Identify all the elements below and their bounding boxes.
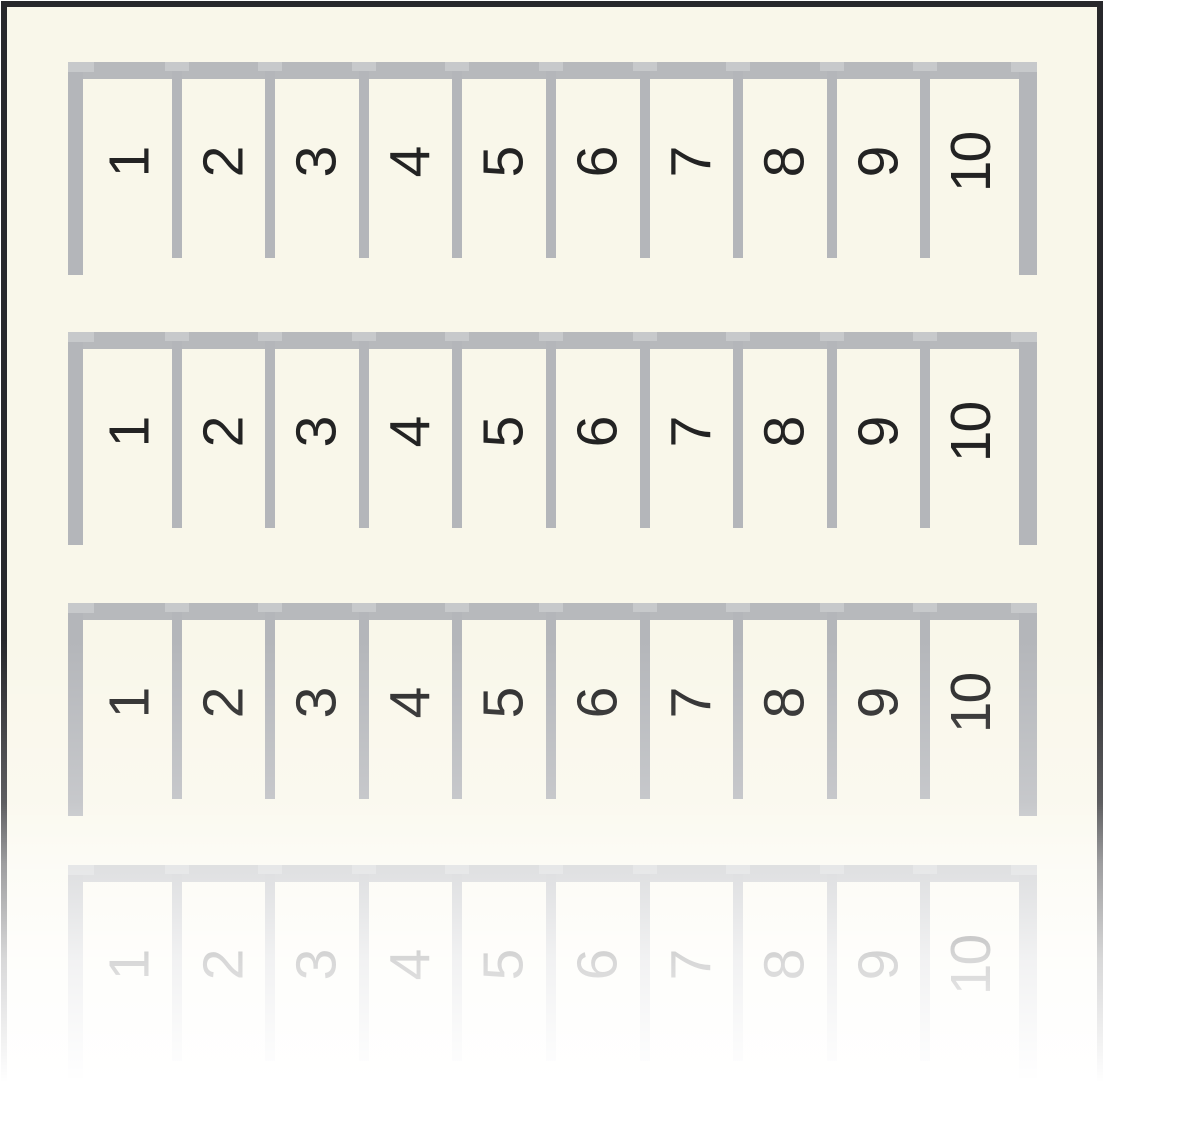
cell-number: 1 — [101, 688, 158, 718]
cell-number: 7 — [663, 950, 720, 980]
cell-number: 9 — [850, 417, 907, 447]
marker-cell: 6 — [551, 903, 645, 1027]
strip-left-rail — [68, 871, 83, 1078]
cell-number: 7 — [663, 417, 720, 447]
marker-cell: 7 — [645, 370, 739, 494]
marker-cell: 6 — [551, 370, 645, 494]
marker-cell: 1 — [83, 641, 177, 765]
cell-divider-cap — [913, 603, 937, 612]
strip-left-rail-cap — [68, 62, 94, 72]
cell-divider-cap — [820, 865, 844, 874]
cell-number: 5 — [476, 147, 533, 177]
cell-number: 5 — [476, 688, 533, 718]
cell-divider-cap — [352, 62, 376, 71]
marker-cell: 2 — [177, 100, 271, 224]
marker-cell: 4 — [364, 903, 458, 1027]
marker-cell: 3 — [270, 903, 364, 1027]
marker-cell: 10 — [925, 641, 1019, 765]
marker-strip-4-faded: 12345678910 — [68, 865, 1037, 1078]
cell-divider-cap — [913, 332, 937, 341]
marker-cell: 1 — [83, 100, 177, 224]
strip-right-rail-cap — [1011, 62, 1037, 72]
strip-left-rail — [68, 68, 83, 275]
marker-cell: 9 — [832, 641, 926, 765]
marker-cell: 8 — [738, 100, 832, 224]
marker-strip-2: 12345678910 — [68, 332, 1037, 545]
cell-number: 10 — [944, 132, 1001, 191]
cell-number: 2 — [195, 147, 252, 177]
cell-number: 3 — [288, 147, 345, 177]
marker-strip-3: 12345678910 — [68, 603, 1037, 816]
strip-left-rail-cap — [68, 332, 94, 342]
marker-cell: 5 — [457, 370, 551, 494]
cell-number: 4 — [382, 950, 439, 980]
cell-number: 1 — [101, 950, 158, 980]
strip-right-rail-cap — [1011, 332, 1037, 342]
cell-number: 4 — [382, 417, 439, 447]
cell-number: 8 — [756, 950, 813, 980]
cell-divider-cap — [726, 332, 750, 341]
marker-cell: 3 — [270, 641, 364, 765]
marker-cell: 6 — [551, 100, 645, 224]
cell-divider-cap — [165, 62, 189, 71]
marker-cell: 2 — [177, 370, 271, 494]
marker-cell: 1 — [83, 370, 177, 494]
cell-divider-cap — [539, 603, 563, 612]
cell-number: 5 — [476, 417, 533, 447]
cell-divider-cap — [820, 603, 844, 612]
marker-cell: 4 — [364, 641, 458, 765]
strip-left-rail — [68, 338, 83, 545]
cell-number: 2 — [195, 950, 252, 980]
marker-cell: 7 — [645, 641, 739, 765]
cell-divider-cap — [633, 332, 657, 341]
cell-number: 7 — [663, 147, 720, 177]
marker-cell: 5 — [457, 100, 551, 224]
marker-cell: 4 — [364, 100, 458, 224]
cell-divider-cap — [633, 62, 657, 71]
cell-divider-cap — [445, 603, 469, 612]
marker-cell: 5 — [457, 903, 551, 1027]
cell-number: 6 — [569, 147, 626, 177]
cell-divider-cap — [820, 62, 844, 71]
cell-divider-cap — [352, 332, 376, 341]
marker-cell: 10 — [925, 903, 1019, 1027]
cell-number: 4 — [382, 147, 439, 177]
cell-number: 3 — [288, 688, 345, 718]
marker-cell: 2 — [177, 903, 271, 1027]
strip-right-rail — [1019, 609, 1037, 816]
marker-cell: 5 — [457, 641, 551, 765]
cell-number: 10 — [944, 935, 1001, 994]
strip-right-rail-cap — [1011, 603, 1037, 613]
marker-cell: 9 — [832, 370, 926, 494]
strip-right-rail — [1019, 68, 1037, 275]
cell-number: 6 — [569, 688, 626, 718]
cell-number: 1 — [101, 417, 158, 447]
cell-number: 10 — [944, 402, 1001, 461]
marker-cell: 8 — [738, 641, 832, 765]
cell-divider-cap — [539, 62, 563, 71]
cell-divider-cap — [726, 865, 750, 874]
cell-number: 8 — [756, 688, 813, 718]
marker-cell: 1 — [83, 903, 177, 1027]
marker-cell: 8 — [738, 370, 832, 494]
cell-divider-cap — [258, 603, 282, 612]
strip-right-rail — [1019, 871, 1037, 1078]
cell-number: 9 — [850, 688, 907, 718]
marker-cell: 3 — [270, 100, 364, 224]
strip-right-rail — [1019, 338, 1037, 545]
marker-cell: 8 — [738, 903, 832, 1027]
cell-divider-cap — [445, 865, 469, 874]
marker-cell: 9 — [832, 903, 926, 1027]
cell-divider-cap — [539, 865, 563, 874]
cell-divider-cap — [633, 603, 657, 612]
strip-left-rail-cap — [68, 603, 94, 613]
cell-divider-cap — [165, 603, 189, 612]
cell-number: 1 — [101, 147, 158, 177]
product-photo: 1234567891012345678910123456789101234567… — [0, 0, 1194, 1122]
strip-left-rail-cap — [68, 865, 94, 875]
marker-strip-1: 12345678910 — [68, 62, 1037, 275]
marker-cell: 10 — [925, 370, 1019, 494]
marker-cell: 10 — [925, 100, 1019, 224]
cell-divider-cap — [165, 332, 189, 341]
marker-cell: 2 — [177, 641, 271, 765]
cell-divider-cap — [913, 62, 937, 71]
cell-divider-cap — [820, 332, 844, 341]
cell-divider-cap — [258, 62, 282, 71]
cell-number: 2 — [195, 688, 252, 718]
cell-number: 8 — [756, 417, 813, 447]
cell-divider-cap — [726, 62, 750, 71]
cell-number: 4 — [382, 688, 439, 718]
cell-number: 7 — [663, 688, 720, 718]
marker-cell: 7 — [645, 100, 739, 224]
strip-left-rail — [68, 609, 83, 816]
cell-divider-cap — [445, 62, 469, 71]
cell-number: 10 — [944, 673, 1001, 732]
cell-divider-cap — [258, 332, 282, 341]
cell-number: 8 — [756, 147, 813, 177]
cell-divider-cap — [633, 865, 657, 874]
marker-cell: 3 — [270, 370, 364, 494]
cell-divider-cap — [539, 332, 563, 341]
cell-number: 2 — [195, 417, 252, 447]
cell-divider-cap — [352, 865, 376, 874]
cell-number: 6 — [569, 417, 626, 447]
cell-divider-cap — [352, 603, 376, 612]
cell-number: 3 — [288, 950, 345, 980]
marker-cell: 9 — [832, 100, 926, 224]
cell-number: 9 — [850, 147, 907, 177]
cell-number: 3 — [288, 417, 345, 447]
marker-cell: 6 — [551, 641, 645, 765]
cell-divider-cap — [913, 865, 937, 874]
cell-number: 9 — [850, 950, 907, 980]
cell-divider-cap — [258, 865, 282, 874]
cell-divider-cap — [726, 603, 750, 612]
strip-right-rail-cap — [1011, 865, 1037, 875]
marker-cell: 4 — [364, 370, 458, 494]
cell-divider-cap — [165, 865, 189, 874]
cell-number: 6 — [569, 950, 626, 980]
cell-divider-cap — [445, 332, 469, 341]
marker-cell: 7 — [645, 903, 739, 1027]
cell-number: 5 — [476, 950, 533, 980]
